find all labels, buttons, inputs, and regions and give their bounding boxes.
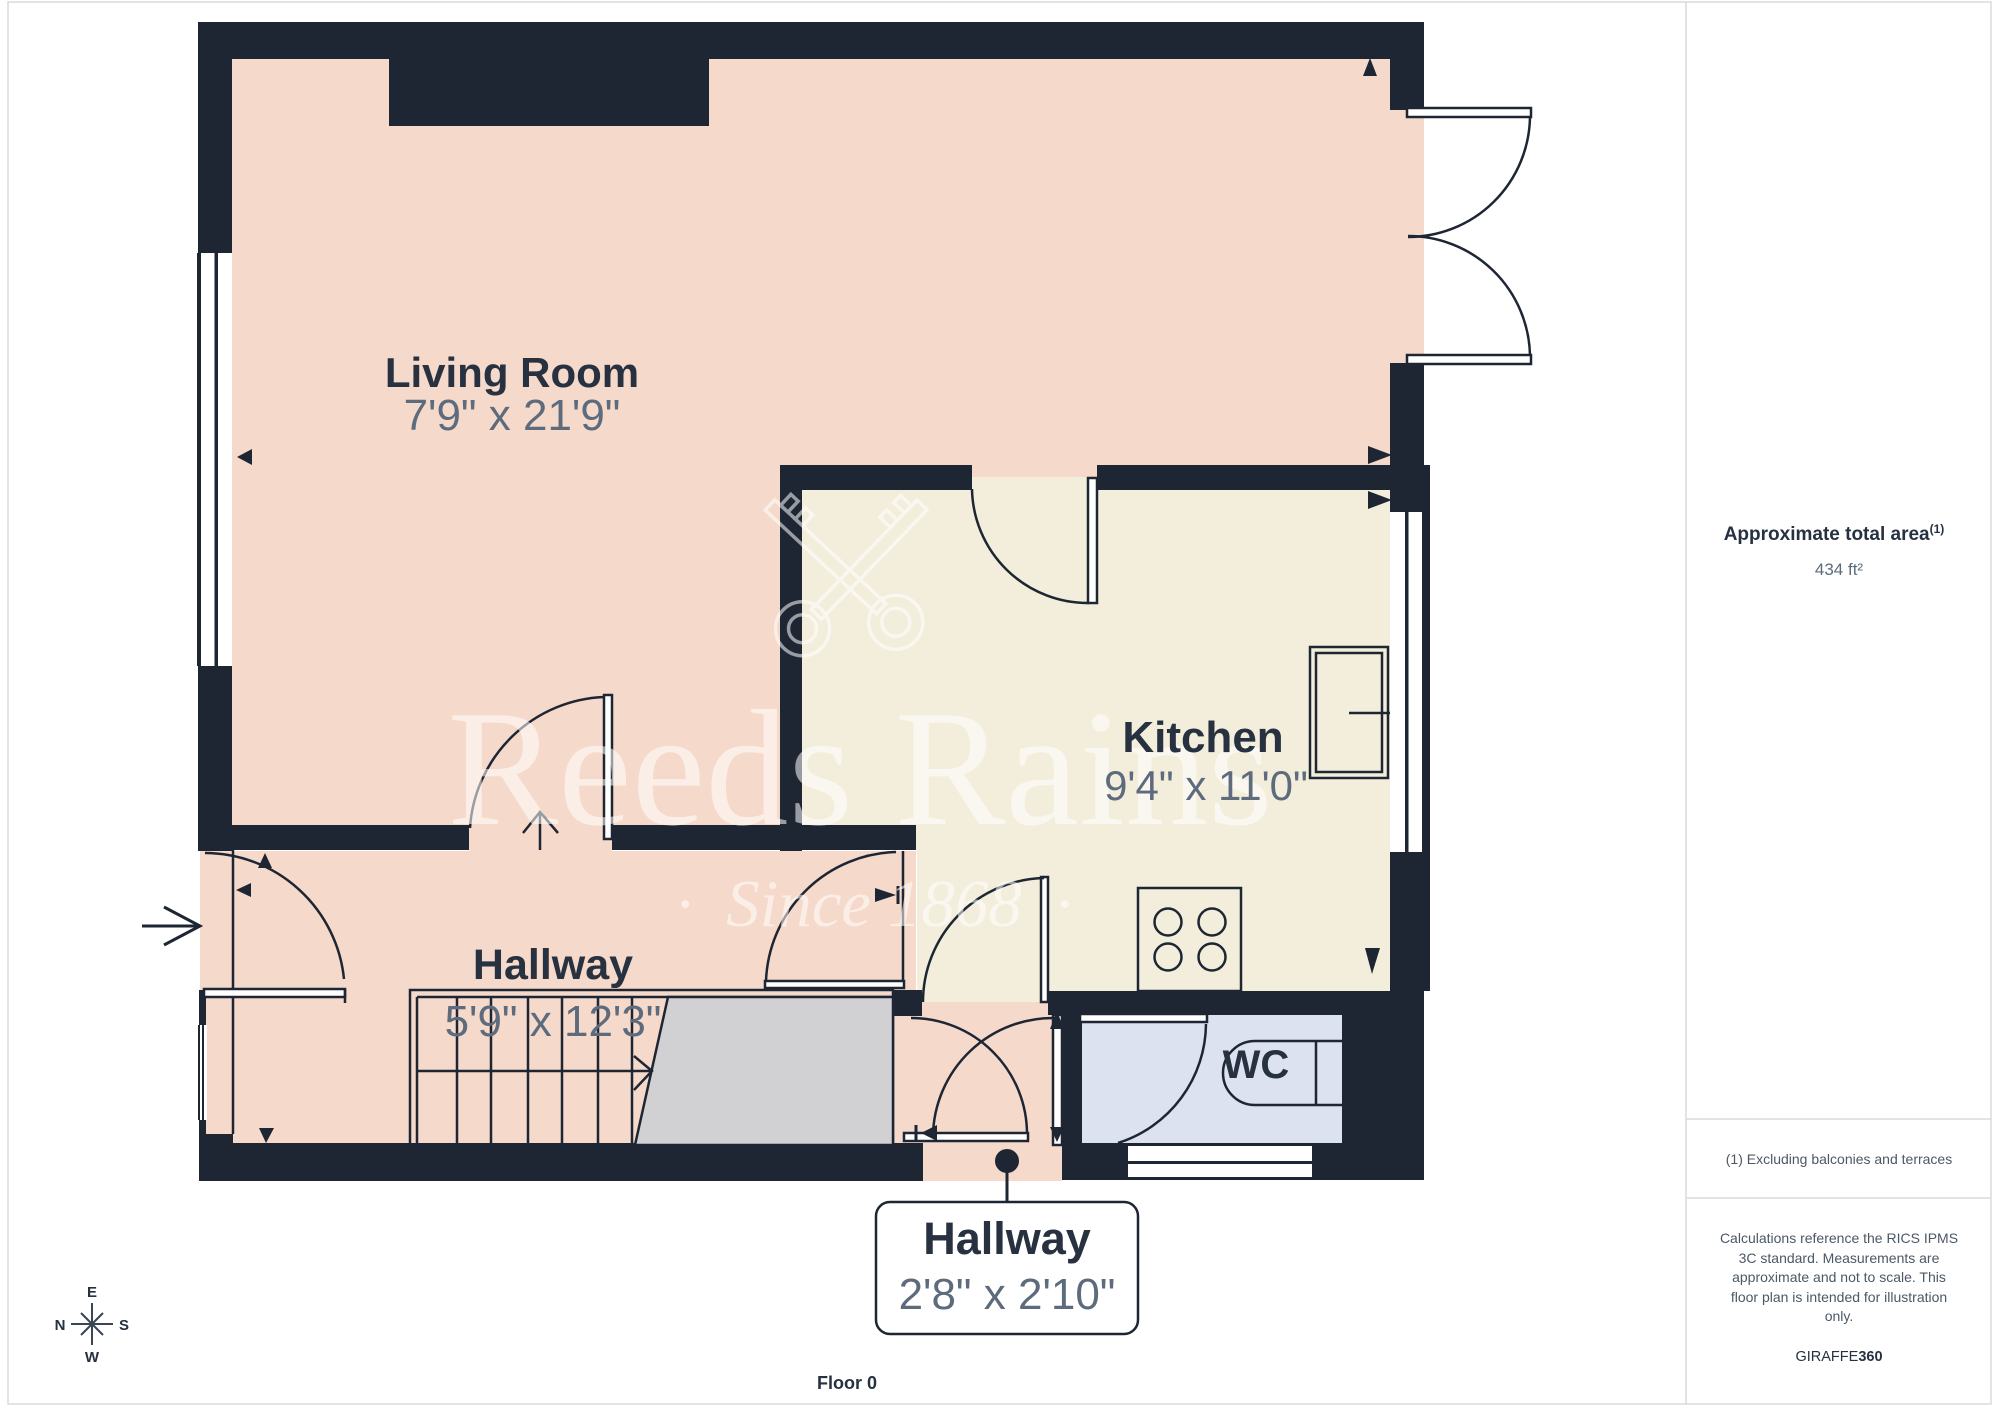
svg-text:E: E <box>87 1284 97 1301</box>
svg-text:9'4" x 11'0": 9'4" x 11'0" <box>1104 762 1308 809</box>
svg-text:N: N <box>55 1317 66 1334</box>
svg-text:2'8" x 2'10": 2'8" x 2'10" <box>899 1270 1116 1319</box>
svg-text:Floor 0: Floor 0 <box>817 1373 877 1393</box>
svg-text:Kitchen: Kitchen <box>1122 713 1283 762</box>
svg-text:floor plan is intended for ill: floor plan is intended for illustration <box>1731 1289 1947 1305</box>
svg-text:GIRAFFE360: GIRAFFE360 <box>1795 1349 1882 1365</box>
svg-text:(1) Excluding balconies and te: (1) Excluding balconies and terraces <box>1726 1151 1952 1167</box>
svg-text:only.: only. <box>1825 1308 1854 1324</box>
svg-text:Hallway: Hallway <box>923 1213 1091 1264</box>
svg-text:3C standard. Measurements are: 3C standard. Measurements are <box>1739 1250 1940 1266</box>
svg-text:Calculations reference the RIC: Calculations reference the RICS IPMS <box>1720 1230 1958 1246</box>
svg-text:Living Room: Living Room <box>385 349 639 396</box>
svg-text:7'9" x 21'9": 7'9" x 21'9" <box>404 391 621 440</box>
svg-text:approximate and not to scale.: approximate and not to scale. This <box>1732 1269 1946 1285</box>
svg-text:· Since 1868 ·: · Since 1868 · <box>676 867 1072 941</box>
svg-text:5'9" x 12'3": 5'9" x 12'3" <box>445 997 662 1046</box>
svg-text:Hallway: Hallway <box>473 941 633 989</box>
svg-text:WC: WC <box>1223 1043 1290 1087</box>
svg-text:W: W <box>85 1349 100 1366</box>
svg-text:Approximate total area(1): Approximate total area(1) <box>1724 522 1945 545</box>
svg-text:434 ft²: 434 ft² <box>1815 560 1864 579</box>
svg-text:S: S <box>119 1317 129 1334</box>
